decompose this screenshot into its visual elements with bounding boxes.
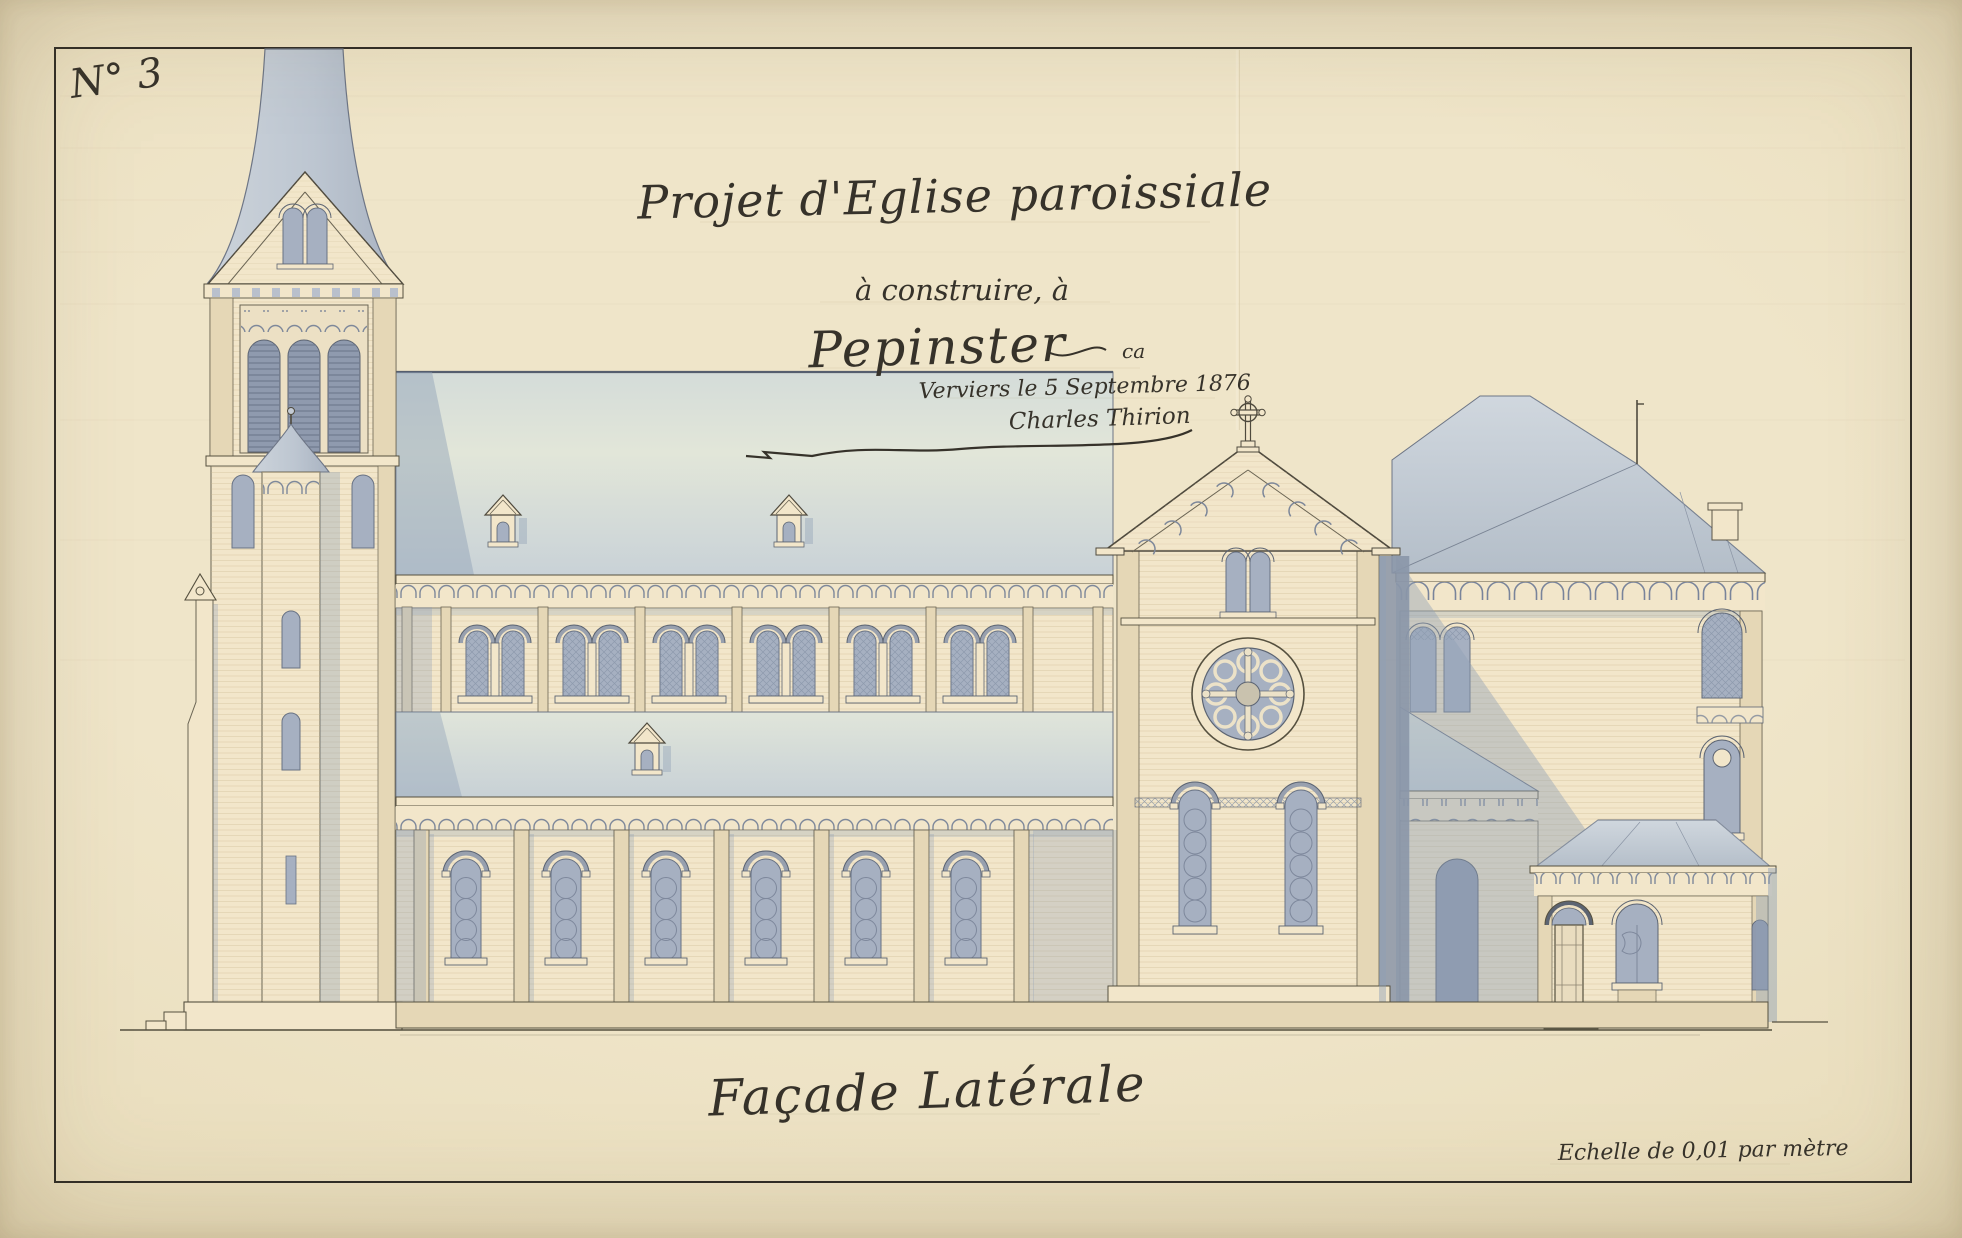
drawing-caption: Façade Latérale — [706, 1054, 1147, 1127]
place-name: Pepinster — [807, 315, 1069, 380]
drawing-sheet: N° 3 Projet d'Eglise paroissiale à const… — [0, 0, 1962, 1238]
clerestory — [396, 575, 1113, 712]
tower-buttress — [185, 574, 218, 1002]
plan-number: N° 3 — [66, 49, 166, 108]
architect-signature: Charles Thirion — [1008, 403, 1191, 435]
sacristy — [1530, 820, 1777, 1029]
choir-roof — [1392, 396, 1765, 573]
nave-roof — [396, 372, 1113, 575]
elevation-svg: N° 3 Projet d'Eglise paroissiale à const… — [0, 0, 1962, 1238]
aisle-wall — [396, 797, 1117, 1002]
tower-plinth — [184, 1002, 402, 1030]
drawing-subtitle: à construire, à — [855, 273, 1069, 307]
place-suffix: ca — [1122, 339, 1145, 363]
drawing-title: Projet d'Eglise paroissiale — [636, 162, 1273, 229]
transept — [1096, 396, 1400, 1002]
chimney — [1708, 503, 1742, 540]
aisle-roof — [396, 712, 1113, 797]
belfry — [210, 298, 396, 456]
sacristy-window — [1612, 900, 1662, 1008]
rose-window — [1192, 638, 1304, 750]
entrance-steps — [146, 1012, 186, 1030]
stair-turret — [253, 408, 340, 1003]
scale-note: Echelle de 0,01 par mètre — [1557, 1136, 1849, 1166]
plinth — [396, 1002, 1768, 1028]
